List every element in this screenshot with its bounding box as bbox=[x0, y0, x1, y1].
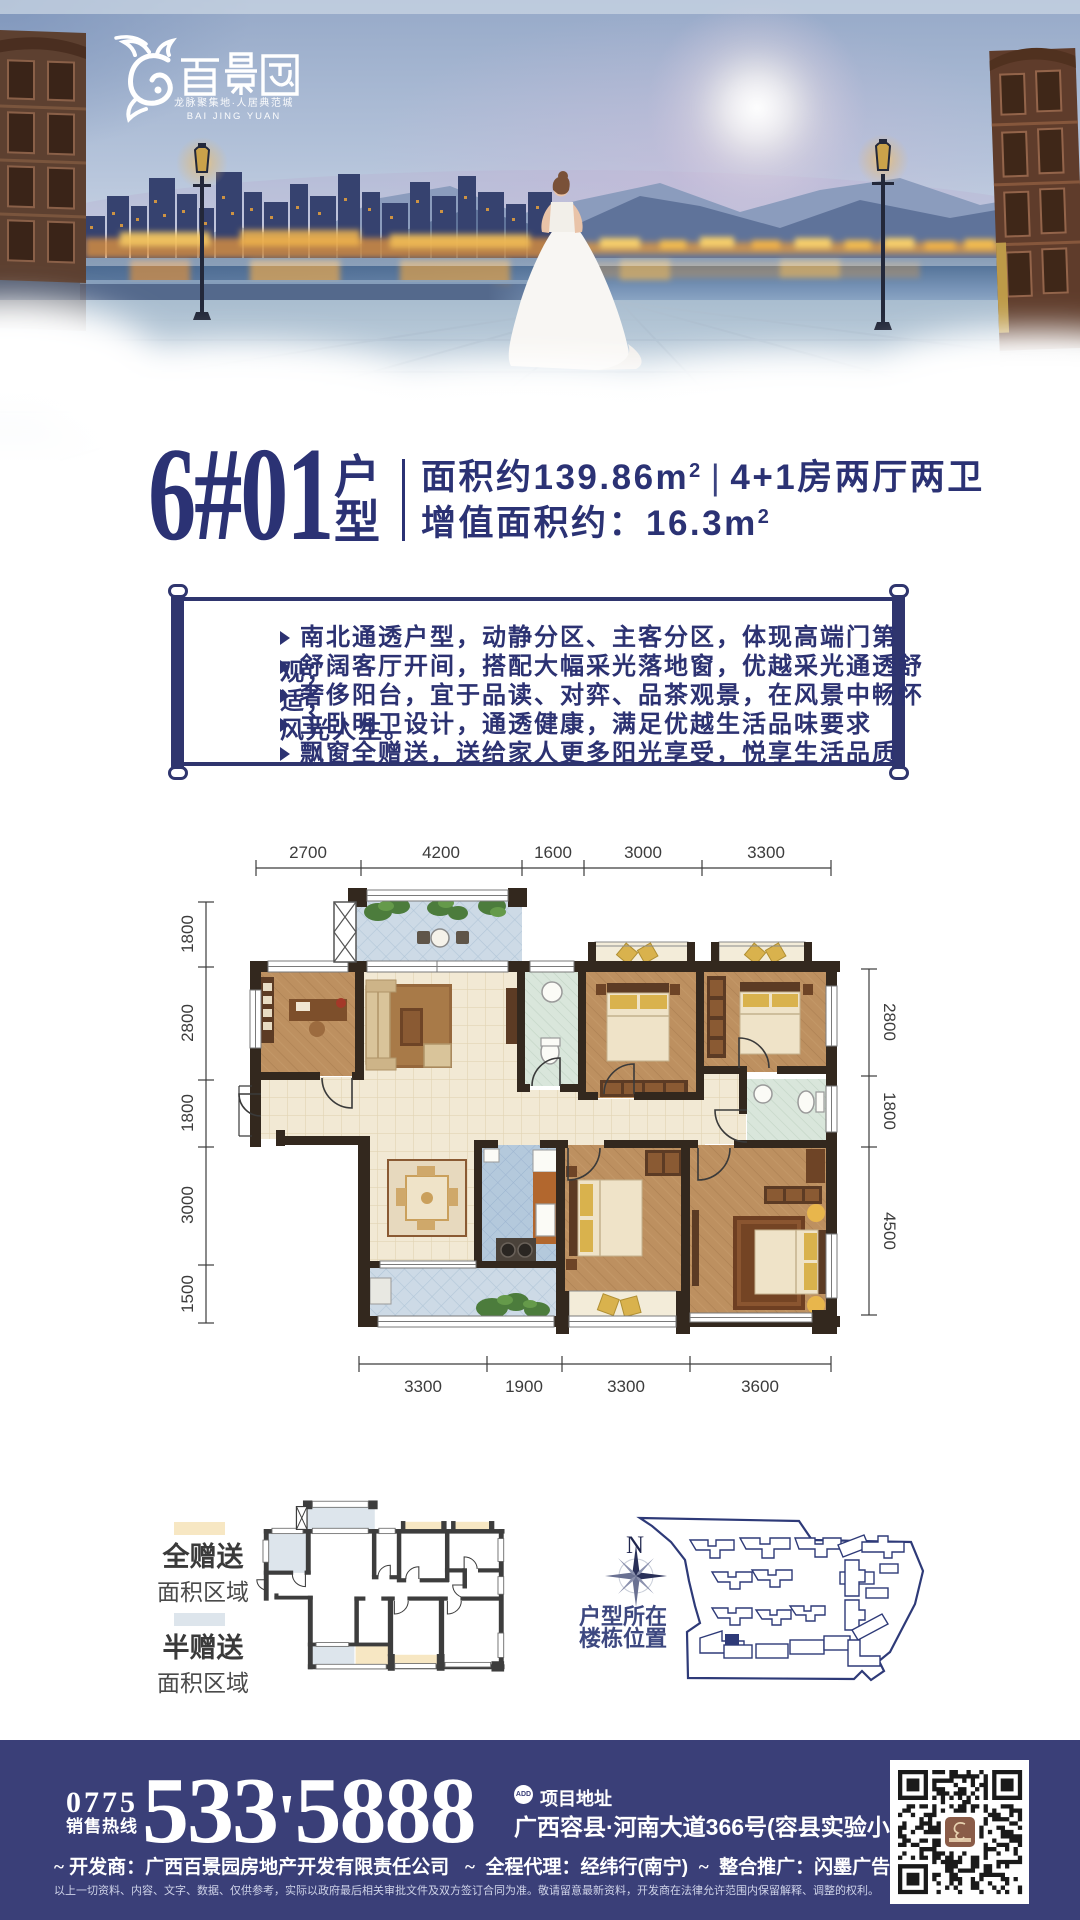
svg-text:1500: 1500 bbox=[178, 1275, 197, 1313]
svg-text:1800: 1800 bbox=[880, 1092, 899, 1130]
svg-text:BAI JING YUAN: BAI JING YUAN bbox=[187, 111, 281, 122]
svg-text:3300: 3300 bbox=[607, 1377, 645, 1396]
svg-text:4500: 4500 bbox=[880, 1212, 899, 1250]
svg-text:1900: 1900 bbox=[505, 1377, 543, 1396]
svg-text:龙脉聚集地·人居典范城: 龙脉聚集地·人居典范城 bbox=[174, 96, 294, 109]
svg-text:1600: 1600 bbox=[534, 843, 572, 862]
svg-text:3300: 3300 bbox=[404, 1377, 442, 1396]
svg-text:3000: 3000 bbox=[178, 1186, 197, 1224]
svg-text:4200: 4200 bbox=[422, 843, 460, 862]
svg-text:2800: 2800 bbox=[178, 1004, 197, 1042]
svg-text:1800: 1800 bbox=[178, 1094, 197, 1132]
svg-text:2700: 2700 bbox=[289, 843, 327, 862]
svg-text:2800: 2800 bbox=[880, 1003, 899, 1041]
svg-text:3600: 3600 bbox=[741, 1377, 779, 1396]
svg-text:3300: 3300 bbox=[747, 843, 785, 862]
svg-text:3000: 3000 bbox=[624, 843, 662, 862]
svg-text:1800: 1800 bbox=[178, 915, 197, 953]
